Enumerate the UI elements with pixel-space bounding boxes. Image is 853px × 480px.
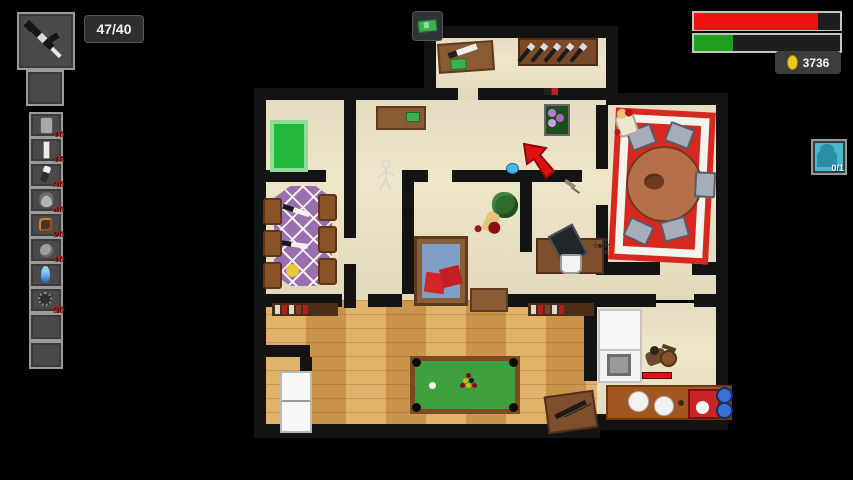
wall	[478, 88, 608, 100]
person-counter: 0/1	[811, 139, 847, 175]
book	[289, 305, 294, 314]
wall	[402, 170, 428, 182]
divider	[282, 400, 310, 402]
book	[296, 305, 301, 314]
chalk-outline	[374, 158, 398, 194]
fridge	[598, 309, 642, 351]
health-bar	[692, 11, 842, 32]
cash-icon	[417, 19, 437, 33]
green-mat	[270, 120, 308, 172]
bed	[414, 236, 468, 306]
bookshelf	[528, 303, 594, 316]
wall	[368, 294, 402, 307]
flower-planter	[544, 104, 570, 136]
molotov-icon	[40, 165, 52, 182]
knob	[678, 400, 684, 406]
pot	[696, 401, 709, 414]
inventory-slot-bear-trap[interactable]: 30	[29, 287, 63, 313]
plate	[286, 264, 299, 277]
potion-icon	[41, 266, 50, 283]
dining-chair	[318, 194, 337, 221]
grenade-icon	[40, 117, 53, 134]
ball	[460, 383, 465, 388]
pocket	[412, 403, 421, 412]
pocket	[412, 358, 421, 367]
burner	[607, 354, 631, 376]
book	[282, 305, 287, 314]
ball	[466, 383, 471, 388]
knife	[282, 204, 310, 217]
inventory-slot-molotov[interactable]: 30	[29, 162, 63, 188]
pool-table	[410, 356, 520, 414]
bookshelf	[272, 303, 338, 316]
knife	[280, 240, 308, 249]
wall	[344, 264, 356, 308]
sink	[628, 391, 649, 412]
book	[545, 305, 550, 314]
book	[531, 305, 536, 314]
wall	[344, 98, 356, 182]
kitchen-counter	[606, 385, 732, 420]
inventory-slot-potion[interactable]	[29, 262, 63, 288]
cash-objective-button[interactable]	[412, 11, 443, 41]
dining-chair	[263, 262, 282, 289]
person-counter-text: 0/1	[831, 163, 844, 173]
armor-fill	[694, 35, 733, 51]
mask-icon	[39, 192, 54, 208]
dining-chair	[263, 198, 282, 225]
health-fill	[694, 13, 818, 30]
wall-switch	[544, 88, 558, 95]
rifle-pickup	[554, 400, 587, 419]
gun-table	[544, 390, 599, 435]
water-jugs	[716, 387, 730, 417]
book	[552, 305, 557, 314]
bullet-marks: ✛ ✛	[592, 240, 612, 258]
wall	[520, 182, 532, 252]
round-table	[624, 144, 704, 224]
money-counter: 3736	[775, 51, 841, 74]
cue-ball	[429, 382, 436, 389]
inventory-slot-syringe[interactable]: 15	[29, 137, 63, 163]
bomb-icon	[39, 218, 52, 231]
wall	[594, 294, 656, 307]
weapon-slot[interactable]	[17, 12, 75, 70]
wall	[596, 262, 660, 275]
inventory-slot-mask[interactable]: 40	[29, 187, 63, 213]
jug	[716, 402, 733, 419]
flower	[548, 109, 556, 117]
inventory-slot-empty[interactable]	[29, 341, 63, 369]
table-knot	[644, 173, 665, 190]
ammo-counter: 47/40	[84, 15, 144, 43]
stove	[598, 349, 642, 383]
inventory-slot-bomb[interactable]: 20	[29, 212, 63, 238]
chair	[694, 171, 716, 198]
pocket	[509, 358, 518, 367]
book	[559, 305, 564, 314]
syringe-icon	[43, 141, 50, 159]
plate	[654, 396, 674, 416]
desk-with-cash	[376, 106, 426, 130]
dining-chair	[318, 258, 337, 285]
trash-bin	[560, 254, 582, 274]
armor-bar	[692, 33, 842, 53]
inventory-slot-mine[interactable]: 10	[29, 237, 63, 263]
inventory-slot-grenade[interactable]: 10	[29, 112, 63, 138]
wall	[266, 345, 310, 357]
ammo-text: 47/40	[96, 21, 131, 37]
enemy-health-bar	[642, 372, 672, 379]
wall	[436, 88, 458, 100]
objective-arrow	[518, 138, 560, 182]
wall	[424, 26, 618, 38]
cash-pickup	[450, 58, 467, 70]
bear-trap-icon	[38, 292, 52, 306]
knife-table	[437, 40, 495, 74]
wall	[402, 182, 414, 294]
enemy-head	[650, 346, 659, 355]
dining-chair	[318, 226, 337, 253]
pocket	[509, 403, 518, 412]
money-text: 3736	[803, 56, 830, 70]
game-screen: ✛ ✛	[0, 0, 853, 480]
stool	[660, 350, 677, 367]
book	[303, 305, 308, 314]
wall	[606, 93, 728, 105]
wall	[694, 294, 724, 307]
inventory-slot-empty[interactable]	[29, 313, 63, 341]
secondary-slot[interactable]	[26, 70, 64, 106]
chair	[622, 216, 654, 246]
weapon-rack	[518, 38, 598, 66]
knife	[447, 44, 477, 59]
cash-pickup	[406, 112, 420, 122]
mine-icon	[39, 243, 54, 258]
cash-band	[424, 22, 430, 28]
rifle-icon	[17, 12, 71, 66]
book	[275, 305, 280, 314]
book	[538, 305, 543, 314]
coin-icon	[787, 55, 798, 70]
ball	[472, 383, 477, 388]
ball-rack	[459, 373, 477, 391]
dining-chair	[263, 230, 282, 257]
wall	[344, 182, 356, 238]
white-cabinet	[280, 371, 312, 433]
nightstand	[470, 288, 508, 312]
